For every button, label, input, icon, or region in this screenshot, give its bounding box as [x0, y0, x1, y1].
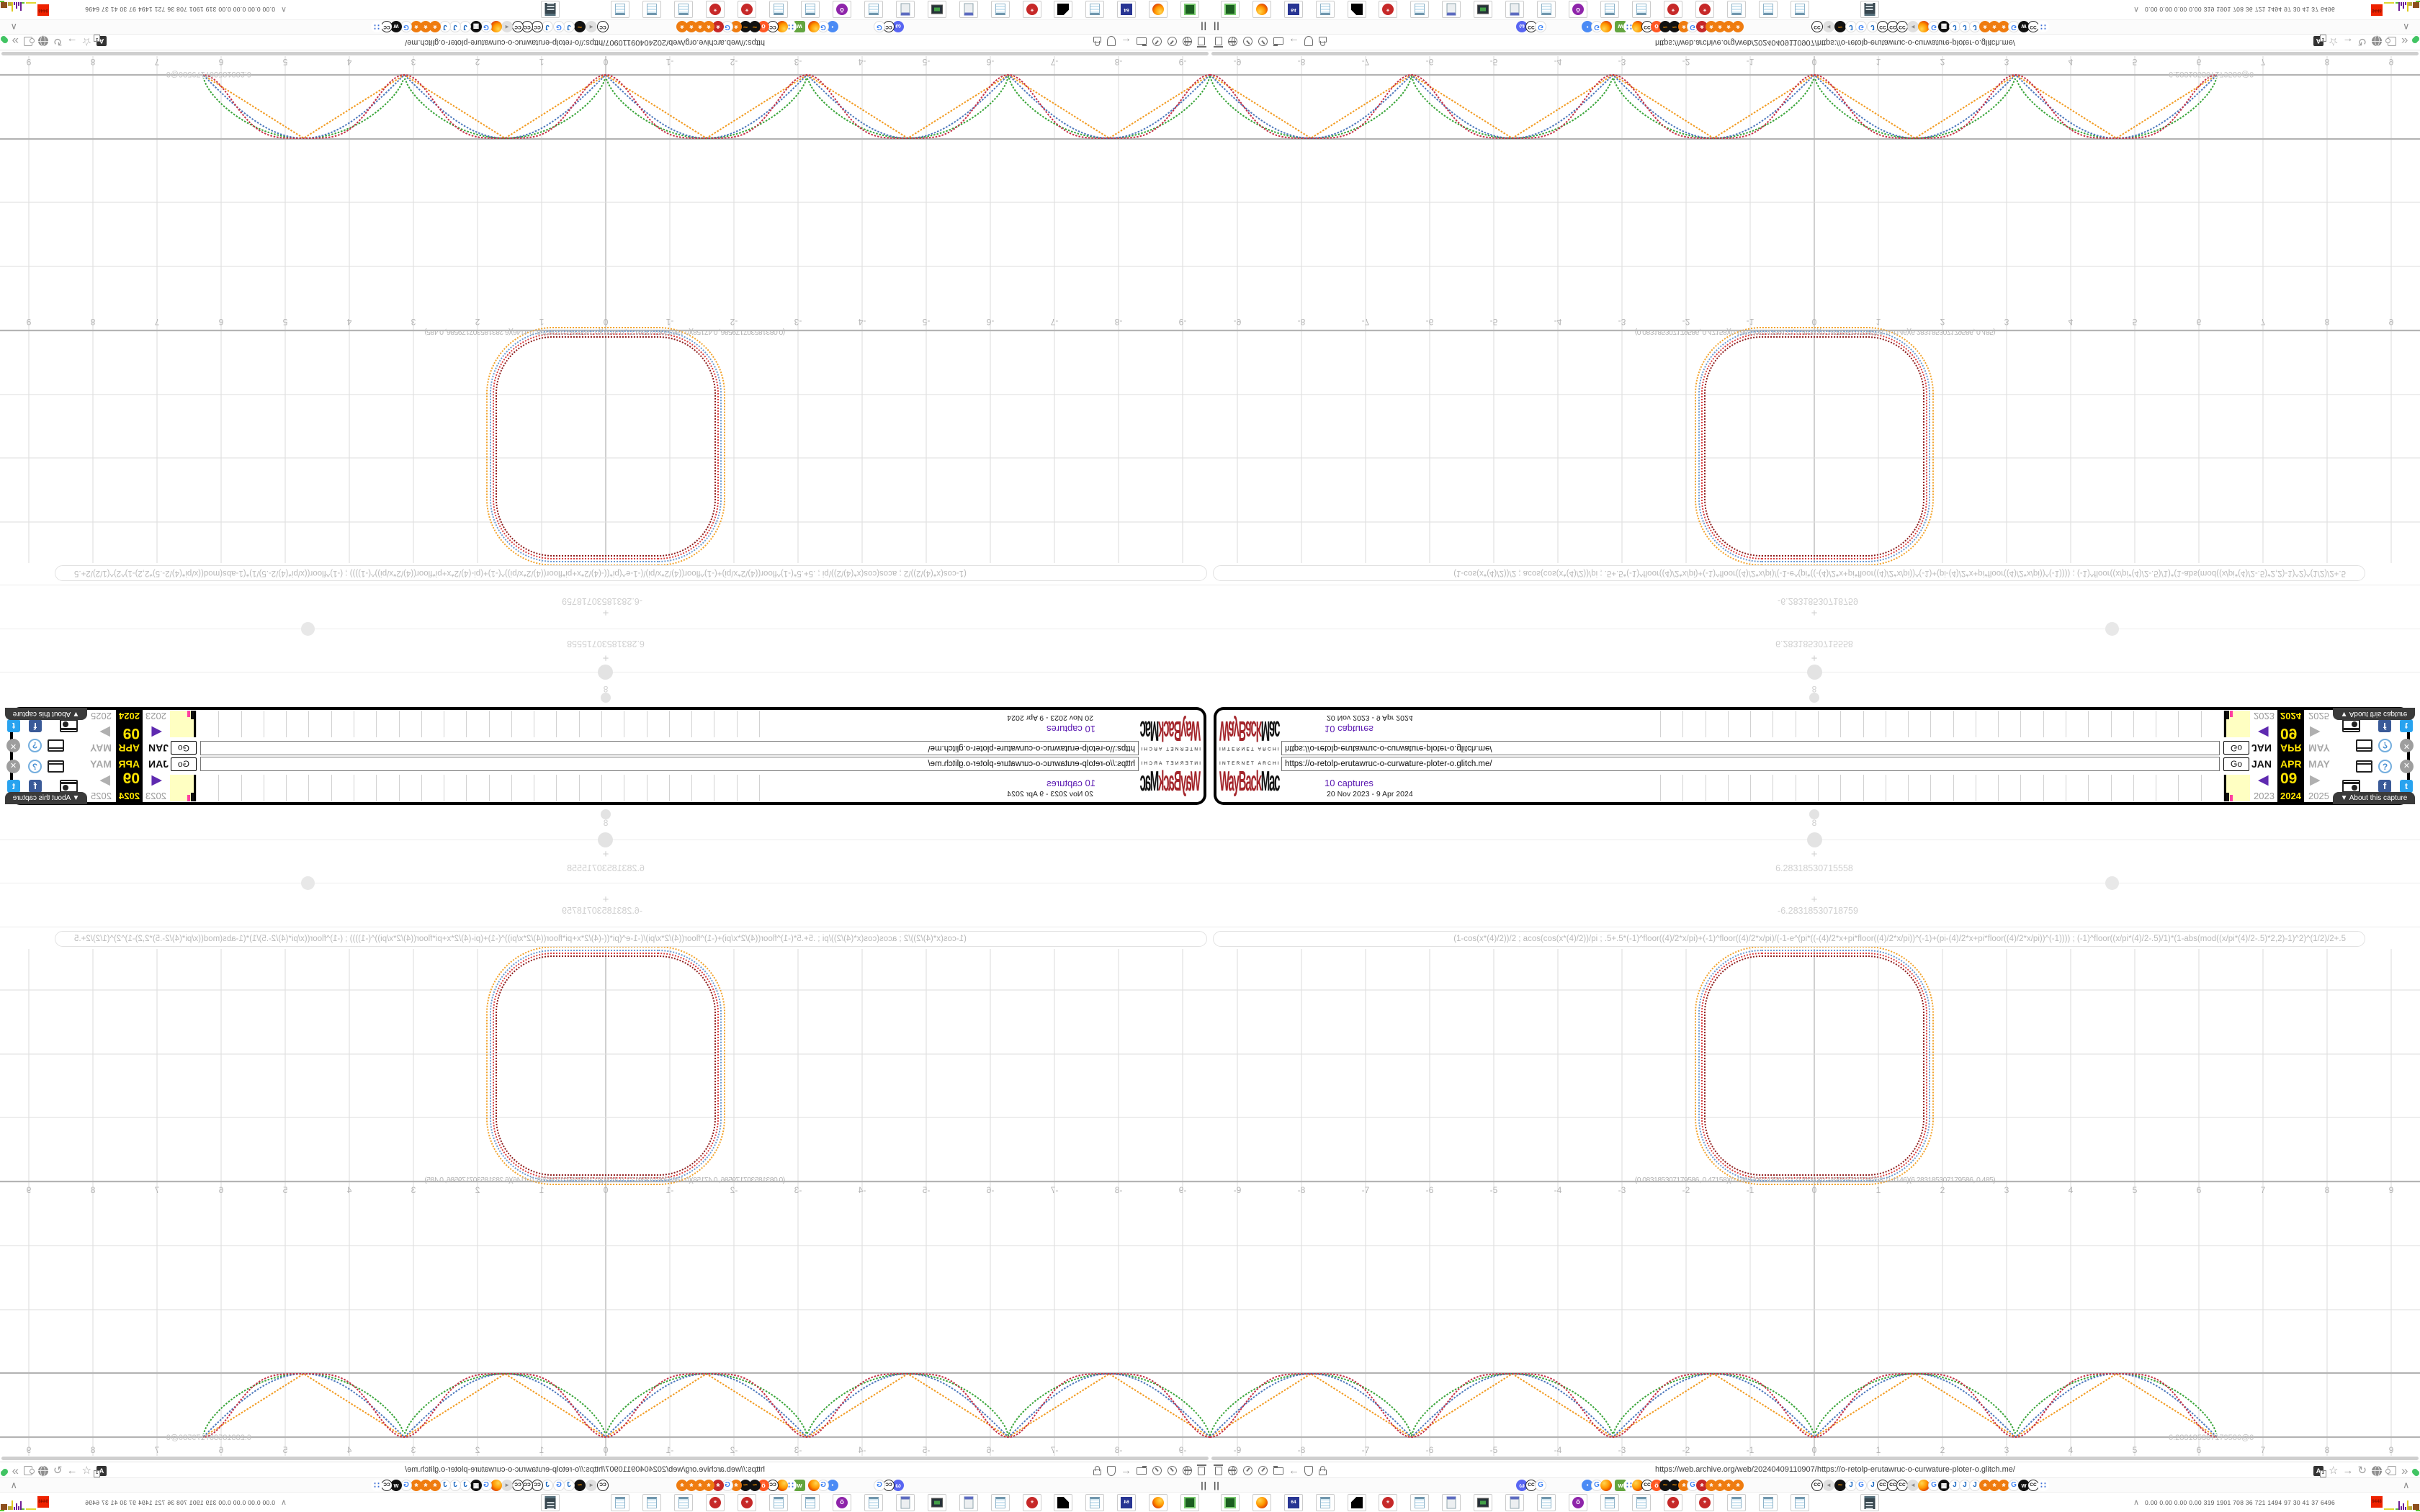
bookmark-notepad[interactable]: [611, 1, 629, 18]
lock-icon[interactable]: [1319, 1470, 1327, 1475]
month-tab-current[interactable]: APR: [2280, 742, 2302, 754]
year-current[interactable]: 2024: [2280, 791, 2301, 801]
globe-dark-icon[interactable]: [2372, 1466, 2382, 1476]
year-prev[interactable]: 2023: [2254, 711, 2275, 721]
tab-favicon-cc[interactable]: CC: [597, 21, 609, 32]
translate-icon[interactable]: A: [2313, 36, 2323, 46]
year-current[interactable]: 2024: [119, 791, 140, 801]
about-this-capture-button[interactable]: ▼ About this capture: [2333, 792, 2415, 804]
bookmark-monitor[interactable]: [928, 1, 946, 18]
tab-favicon-cc[interactable]: CC: [1811, 21, 1823, 32]
year-next[interactable]: 2025: [91, 791, 112, 801]
puzzle-icon[interactable]: [2388, 1466, 2396, 1475]
bookmark-notepad[interactable]: [801, 1494, 820, 1511]
tab-favicon-firefox[interactable]: [1600, 1480, 1612, 1491]
range-min-value[interactable]: -6.28318530718759: [1757, 906, 1879, 916]
range-max-value[interactable]: 6.28318530715558: [1757, 639, 1872, 649]
translate-icon[interactable]: A: [97, 36, 107, 46]
bookmark-gear-r[interactable]: *: [738, 1, 756, 18]
bookmark-notepad[interactable]: [1759, 1, 1778, 18]
bookmark-owl[interactable]: ö: [833, 1494, 851, 1511]
tab-favicon-google[interactable]: G: [553, 21, 565, 32]
reload-icon[interactable]: ↻: [2357, 35, 2367, 48]
tab-favicon-google[interactable]: G: [874, 1480, 885, 1491]
tab-favicon-google[interactable]: G: [874, 21, 885, 32]
tab-favicon-google[interactable]: G: [1535, 1480, 1546, 1491]
bookmark-notepad[interactable]: [769, 1494, 788, 1511]
bookmark-notepad[interactable]: [1632, 1494, 1651, 1511]
bookmark-firefox[interactable]: [1149, 1, 1168, 18]
tab-favicon-speaker[interactable]: ◄: [586, 1480, 597, 1491]
tab-favicon-java[interactable]: J: [563, 21, 575, 32]
slider-handle[interactable]: [1807, 832, 1822, 847]
trash-icon[interactable]: [1215, 1467, 1222, 1475]
back-arrow-icon[interactable]: ←: [1121, 1464, 1131, 1477]
twitter-share-icon[interactable]: t: [2400, 780, 2413, 793]
facebook-share-icon[interactable]: f: [29, 719, 42, 732]
wayback-url-input[interactable]: [200, 757, 1139, 771]
pause-icon[interactable]: ||: [1214, 22, 1220, 32]
drag-cross-icon[interactable]: +: [584, 652, 627, 664]
about-this-capture-button[interactable]: ▼ About this capture: [5, 708, 87, 720]
bookmark-monitor[interactable]: [1474, 1494, 1492, 1511]
bookmark-notepad[interactable]: [1085, 1, 1104, 18]
go-button[interactable]: Go: [2223, 757, 2249, 771]
captures-link[interactable]: 10 captures: [1047, 778, 1095, 788]
screenshot-icon[interactable]: [60, 719, 78, 732]
bookmark-notepad[interactable]: [674, 1494, 693, 1511]
puzzle-icon[interactable]: [2388, 37, 2396, 46]
window-expand-icon[interactable]: [48, 760, 64, 773]
tab-favicon-cc[interactable]: CC: [1811, 1480, 1823, 1491]
trash-icon[interactable]: [1198, 37, 1205, 45]
help-icon[interactable]: ?: [2378, 760, 2392, 773]
screenshot-icon[interactable]: [2342, 780, 2360, 793]
prev-capture-arrow[interactable]: ◀: [2258, 724, 2269, 739]
chevrons-icon[interactable]: »: [12, 35, 19, 48]
next-capture-arrow[interactable]: ▶: [2310, 773, 2321, 788]
tab-favicon-firefox[interactable]: [490, 21, 502, 32]
facebook-share-icon[interactable]: f: [29, 780, 42, 793]
help-icon[interactable]: ?: [2378, 739, 2392, 752]
bookmark-gear-r[interactable]: *: [1695, 1494, 1714, 1511]
slider-tick-icon[interactable]: +: [1793, 894, 1836, 906]
prev-capture-arrow[interactable]: ◀: [151, 724, 162, 739]
go-button[interactable]: Go: [171, 741, 197, 755]
bookmark-calc[interactable]: [1442, 1494, 1461, 1511]
bookmark-console[interactable]: [1221, 1494, 1240, 1511]
slider-tick-icon[interactable]: +: [584, 894, 627, 906]
bookmark-doc[interactable]: [1860, 1, 1879, 18]
captures-link[interactable]: 10 captures: [1325, 778, 1373, 788]
bookmark-cat[interactable]: [1348, 1, 1366, 18]
help-icon[interactable]: ?: [28, 760, 42, 773]
bookmark-floppy[interactable]: 64: [1284, 1494, 1303, 1511]
year-prev[interactable]: 2023: [145, 711, 166, 721]
bookmark-monitor[interactable]: [1474, 1, 1492, 18]
bookmark-cat[interactable]: [1054, 1, 1072, 18]
wayback-logo[interactable]: INTERNET ARCHIVE WayBackMachine: [1219, 710, 1280, 755]
tab-favicon-wave[interactable]: ~: [1834, 21, 1846, 32]
tab-favicon-speaker[interactable]: ◄: [1907, 1480, 1919, 1491]
window-expand-icon[interactable]: [2356, 739, 2372, 752]
shield-icon[interactable]: [1107, 1466, 1116, 1476]
month-tab-current[interactable]: APR: [118, 758, 140, 770]
month-tab-next[interactable]: MAY: [2308, 742, 2330, 754]
puzzle-icon[interactable]: [24, 1466, 32, 1475]
year-prev[interactable]: 2023: [145, 791, 166, 801]
bookmark-gear-r[interactable]: *: [706, 1, 725, 18]
captures-link[interactable]: 10 captures: [1325, 724, 1373, 734]
go-button[interactable]: Go: [171, 757, 197, 771]
captures-link[interactable]: 10 captures: [1047, 724, 1095, 734]
capture-sparkline[interactable]: [197, 775, 760, 801]
tab-favicon-wave[interactable]: ~: [1834, 1480, 1846, 1491]
tab-favicon-cc[interactable]: CC: [532, 1480, 543, 1491]
bookmark-notepad[interactable]: [864, 1494, 883, 1511]
folder-icon[interactable]: [1273, 1467, 1283, 1475]
gauge-icon[interactable]: [1243, 37, 1252, 46]
close-toolbar-icon[interactable]: ✕: [6, 760, 20, 773]
bookmark-floppy[interactable]: 64: [1117, 1, 1136, 18]
star-icon[interactable]: ☆: [82, 35, 91, 48]
tab-favicon-firefox[interactable]: [808, 1480, 820, 1491]
globe-icon[interactable]: [1228, 37, 1237, 46]
capture-day[interactable]: 09: [123, 770, 140, 788]
tab-favicon-java[interactable]: J: [460, 1480, 471, 1491]
year-next[interactable]: 2025: [2308, 711, 2329, 721]
shield-icon[interactable]: [1304, 1466, 1313, 1476]
month-tab-next[interactable]: MAY: [90, 742, 112, 754]
stepper-handle[interactable]: [601, 693, 611, 703]
chevron-up-icon[interactable]: ∧: [2133, 1498, 2139, 1507]
folder-icon[interactable]: [1137, 1467, 1147, 1475]
tab-favicon-java[interactable]: J: [439, 1480, 451, 1491]
tab-favicon-cc[interactable]: CC: [512, 21, 524, 32]
close-toolbar-icon[interactable]: ✕: [2400, 760, 2414, 773]
back-arrow-icon[interactable]: ←: [1121, 35, 1131, 48]
bookmark-console[interactable]: [1180, 1494, 1199, 1511]
tab-favicon-grid[interactable]: ▦: [1938, 21, 1950, 32]
bookmark-notepad[interactable]: [674, 1, 693, 18]
tab-favicon-cc[interactable]: CC: [1896, 1480, 1908, 1491]
slider-tick-icon[interactable]: +: [584, 606, 627, 618]
bookmark-gear-r[interactable]: *: [738, 1494, 756, 1511]
shield-icon[interactable]: [1304, 36, 1313, 46]
next-capture-arrow[interactable]: ▶: [99, 724, 110, 739]
screenshot-icon[interactable]: [60, 780, 78, 793]
tab-favicon-dots[interactable]: ∷: [371, 1480, 382, 1491]
trash-icon[interactable]: [1198, 1467, 1205, 1475]
shield-icon[interactable]: [1107, 36, 1116, 46]
help-icon[interactable]: ?: [28, 739, 42, 752]
tab-favicon-speaker[interactable]: ◄: [1823, 1480, 1834, 1491]
slider-tick-icon[interactable]: +: [1793, 606, 1836, 618]
bookmark-owl[interactable]: ö: [833, 1, 851, 18]
bookmark-notepad[interactable]: [991, 1, 1010, 18]
chevron-up-icon[interactable]: ∧: [10, 1480, 17, 1491]
tab-favicon-java[interactable]: J: [449, 1480, 461, 1491]
window-expand-icon[interactable]: [48, 739, 64, 752]
chevron-up-icon[interactable]: ∧: [281, 1498, 287, 1507]
tab-favicon-cc[interactable]: CC: [1896, 21, 1908, 32]
bookmark-calc[interactable]: [896, 1, 915, 18]
twitter-share-icon[interactable]: t: [7, 719, 20, 732]
bookmark-doc[interactable]: [541, 1494, 560, 1511]
reload-icon[interactable]: ↻: [53, 1464, 63, 1477]
tab-favicon-grid[interactable]: ▦: [470, 21, 482, 32]
formula-input[interactable]: (1-cos(x*(4)/2))/2 ; acos(cos(x*(4)/2))/…: [55, 931, 1207, 947]
bookmark-calc[interactable]: [1505, 1, 1524, 18]
pause-icon[interactable]: ||: [1200, 1480, 1206, 1490]
year-current[interactable]: 2024: [2280, 711, 2301, 721]
scrollbar-divider[interactable]: [1, 52, 1209, 55]
tab-favicon-speaker[interactable]: ◄: [501, 21, 513, 32]
reload-icon[interactable]: ↻: [2357, 1464, 2367, 1477]
tab-favicon-google[interactable]: G: [1855, 1480, 1867, 1491]
gauge-icon[interactable]: [1258, 37, 1268, 46]
next-capture-arrow[interactable]: ▶: [2310, 724, 2321, 739]
bookmark-notepad[interactable]: [1600, 1494, 1619, 1511]
month-tab-prev[interactable]: JAN: [148, 758, 169, 770]
scrollbar-divider[interactable]: [1211, 1457, 2419, 1460]
segments-value[interactable]: 8: [584, 818, 627, 828]
tab-favicon-google[interactable]: G: [400, 1480, 412, 1491]
tab-favicon-speaker[interactable]: ◄: [1823, 21, 1834, 32]
year-current[interactable]: 2024: [119, 711, 140, 721]
bookmark-notepad[interactable]: [642, 1, 661, 18]
month-tab-current[interactable]: APR: [118, 742, 140, 754]
globe-dark-icon[interactable]: [2372, 36, 2382, 46]
tab-favicon-cc[interactable]: CC: [532, 21, 543, 32]
wayback-logo[interactable]: INTERNET ARCHIVE WayBackMachine: [1140, 757, 1201, 802]
tab-favicon-speaker[interactable]: ◄: [1907, 21, 1919, 32]
back-arrow-icon[interactable]: ←: [1289, 35, 1299, 48]
bookmark-notepad[interactable]: [864, 1, 883, 18]
forward-arrow-icon[interactable]: →: [67, 1464, 78, 1477]
tab-favicon-wave[interactable]: ~: [574, 1480, 586, 1491]
tab-favicon-speaker[interactable]: ◄: [501, 1480, 513, 1491]
capture-day[interactable]: 09: [123, 724, 140, 742]
bookmark-notepad[interactable]: [1727, 1, 1746, 18]
address-bar-url[interactable]: https://web.archive.org/web/202404091109…: [1655, 38, 2015, 47]
tab-favicon-java[interactable]: J: [449, 21, 461, 32]
wayback-logo[interactable]: INTERNET ARCHIVE WayBackMachine: [1219, 757, 1280, 802]
forward-arrow-icon[interactable]: →: [2342, 35, 2353, 48]
bookmark-gear-r[interactable]: *: [1695, 1, 1714, 18]
capture-sparkline[interactable]: [1660, 775, 2223, 801]
folder-icon[interactable]: [1137, 37, 1147, 45]
tab-favicon-google[interactable]: G: [553, 1480, 565, 1491]
star-icon[interactable]: ☆: [82, 1464, 91, 1477]
tab-favicon-gear-o[interactable]: *: [1732, 21, 1744, 32]
bookmark-doc[interactable]: [1860, 1494, 1879, 1511]
pause-icon[interactable]: ||: [1214, 1480, 1220, 1490]
bookmark-gear-r[interactable]: *: [1023, 1, 1041, 18]
drag-cross-icon[interactable]: +: [584, 848, 627, 860]
bookmark-notepad[interactable]: [611, 1494, 629, 1511]
tab-favicon-gear-o[interactable]: *: [1732, 1480, 1744, 1491]
close-toolbar-icon[interactable]: ✕: [6, 739, 20, 752]
capture-sparkline[interactable]: [1660, 711, 2223, 737]
reload-icon[interactable]: ↻: [53, 35, 63, 48]
tab-favicon-google[interactable]: G: [1535, 21, 1546, 32]
about-this-capture-button[interactable]: ▼ About this capture: [5, 792, 87, 804]
tab-favicon-dots[interactable]: ∷: [371, 21, 382, 32]
range-max-value[interactable]: 6.28318530715558: [1757, 863, 1872, 873]
tab-favicon-google[interactable]: G: [480, 21, 492, 32]
twitter-share-icon[interactable]: t: [2400, 719, 2413, 732]
tab-favicon-gear-o[interactable]: *: [411, 21, 422, 32]
bookmark-floppy[interactable]: 64: [1117, 1494, 1136, 1511]
range-min-value[interactable]: -6.28318530718759: [541, 596, 663, 606]
tab-favicon-gear-o[interactable]: *: [676, 21, 688, 32]
formula-input[interactable]: (1-cos(x*(4)/2))/2 ; acos(cos(x*(4)/2))/…: [1213, 565, 2365, 581]
globe-icon[interactable]: [1183, 1466, 1192, 1475]
range-min-value[interactable]: -6.28318530718759: [541, 906, 663, 916]
chevrons-icon[interactable]: »: [12, 1464, 19, 1477]
bookmark-notepad[interactable]: [1600, 1, 1619, 18]
segments-value[interactable]: 8: [1793, 818, 1836, 828]
bookmark-gear-r[interactable]: *: [1379, 1494, 1397, 1511]
gauge-icon[interactable]: [1152, 37, 1162, 46]
close-toolbar-icon[interactable]: ✕: [2400, 739, 2414, 752]
tab-favicon-cc[interactable]: CC: [381, 1480, 393, 1491]
bookmark-calc[interactable]: [1442, 1, 1461, 18]
wayback-url-input[interactable]: [200, 741, 1139, 755]
bookmark-floppy[interactable]: 64: [1284, 1, 1303, 18]
tab-favicon-dots[interactable]: ∷: [2038, 1480, 2049, 1491]
slider-handle[interactable]: [598, 832, 613, 847]
chevrons-icon[interactable]: »: [2401, 1464, 2408, 1477]
back-arrow-icon[interactable]: ←: [1289, 1464, 1299, 1477]
star-icon[interactable]: ☆: [2329, 35, 2338, 48]
month-tab-prev[interactable]: JAN: [148, 742, 169, 754]
month-tab-next[interactable]: MAY: [2308, 758, 2330, 770]
bookmark-calc[interactable]: [896, 1494, 915, 1511]
globe-dark-icon[interactable]: [38, 1466, 48, 1476]
scrollbar-divider[interactable]: [1211, 52, 2419, 55]
forward-arrow-icon[interactable]: →: [2342, 1464, 2353, 1477]
gauge-icon[interactable]: [1258, 1466, 1268, 1475]
drag-cross-icon[interactable]: +: [1793, 652, 1836, 664]
gauge-icon[interactable]: [1168, 37, 1177, 46]
screenshot-icon[interactable]: [2342, 719, 2360, 732]
prev-capture-arrow[interactable]: ◀: [2258, 773, 2269, 788]
tab-favicon-google[interactable]: G: [1855, 21, 1867, 32]
globe-icon[interactable]: [1228, 1466, 1237, 1475]
prev-capture-arrow[interactable]: ◀: [151, 773, 162, 788]
chevron-up-icon[interactable]: ∧: [2133, 5, 2139, 14]
bookmark-monitor[interactable]: [928, 1494, 946, 1511]
bookmark-gear-r[interactable]: *: [1664, 1, 1682, 18]
twitter-share-icon[interactable]: t: [7, 780, 20, 793]
tab-favicon-cc[interactable]: CC: [597, 1480, 609, 1491]
bookmark-notepad[interactable]: [1085, 1494, 1104, 1511]
month-tab-next[interactable]: MAY: [90, 758, 112, 770]
tab-favicon-java[interactable]: J: [542, 21, 553, 32]
forward-arrow-icon[interactable]: →: [67, 35, 78, 48]
tab-favicon-gear-o[interactable]: *: [676, 1480, 688, 1491]
tab-favicon-google[interactable]: G: [480, 1480, 492, 1491]
go-button[interactable]: Go: [2223, 741, 2249, 755]
bookmark-calc[interactable]: [959, 1494, 978, 1511]
tab-favicon-java[interactable]: J: [542, 1480, 553, 1491]
gauge-icon[interactable]: [1243, 1466, 1252, 1475]
tab-favicon-java[interactable]: J: [460, 21, 471, 32]
address-bar-url[interactable]: https://web.archive.org/web/202404091109…: [405, 38, 765, 47]
tab-favicon-speaker[interactable]: ◄: [586, 21, 597, 32]
year-next[interactable]: 2025: [91, 711, 112, 721]
chevron-up-icon[interactable]: ∧: [281, 5, 287, 14]
bookmark-notepad[interactable]: [1410, 1494, 1429, 1511]
window-expand-icon[interactable]: [2356, 760, 2372, 773]
wayback-url-input[interactable]: [1281, 741, 2220, 755]
tab-favicon-grid[interactable]: ▦: [1938, 1480, 1950, 1491]
bookmark-owl[interactable]: ö: [1569, 1494, 1587, 1511]
bookmark-notepad[interactable]: [1410, 1, 1429, 18]
bookmark-notepad[interactable]: [1316, 1494, 1335, 1511]
scrollbar-divider[interactable]: [1, 1457, 1209, 1460]
next-capture-arrow[interactable]: ▶: [99, 773, 110, 788]
slider-handle[interactable]: [598, 665, 613, 680]
chevron-up-icon[interactable]: ∧: [10, 21, 17, 32]
bookmark-cat[interactable]: [1348, 1494, 1366, 1511]
trash-icon[interactable]: [1215, 37, 1222, 45]
drag-cross-icon[interactable]: +: [1793, 848, 1836, 860]
bookmark-console[interactable]: [1180, 1, 1199, 18]
range-min-value[interactable]: -6.28318530718759: [1757, 596, 1879, 606]
tab-favicon-dots[interactable]: ∷: [2038, 21, 2049, 32]
about-this-capture-button[interactable]: ▼ About this capture: [2333, 708, 2415, 720]
bookmark-notepad[interactable]: [1791, 1, 1809, 18]
tab-favicon-cc[interactable]: CC: [512, 1480, 524, 1491]
puzzle-icon[interactable]: [24, 37, 32, 46]
segments-value[interactable]: 8: [584, 684, 627, 694]
star-icon[interactable]: ☆: [2329, 1464, 2338, 1477]
bookmark-notepad[interactable]: [642, 1494, 661, 1511]
bookmark-notepad[interactable]: [1632, 1, 1651, 18]
chevrons-icon[interactable]: »: [2401, 35, 2408, 48]
tab-favicon-google[interactable]: G: [400, 21, 412, 32]
facebook-share-icon[interactable]: f: [2378, 719, 2391, 732]
folder-icon[interactable]: [1273, 37, 1283, 45]
bookmark-notepad[interactable]: [1791, 1494, 1809, 1511]
gauge-icon[interactable]: [1168, 1466, 1177, 1475]
bookmark-doc[interactable]: [541, 1, 560, 18]
bookmark-firefox[interactable]: [1252, 1, 1271, 18]
address-bar-url[interactable]: https://web.archive.org/web/202404091109…: [405, 1465, 765, 1474]
translate-icon[interactable]: A: [97, 1466, 107, 1476]
address-bar-url[interactable]: https://web.archive.org/web/202404091109…: [1655, 1465, 2015, 1474]
bookmark-firefox[interactable]: [1252, 1494, 1271, 1511]
wayback-url-input[interactable]: [1281, 757, 2220, 771]
gauge-icon[interactable]: [1152, 1466, 1162, 1475]
lock-icon[interactable]: [1093, 37, 1101, 42]
bookmark-notepad[interactable]: [1537, 1, 1556, 18]
bookmark-cat[interactable]: [1054, 1494, 1072, 1511]
slider-handle[interactable]: [1807, 665, 1822, 680]
lock-icon[interactable]: [1093, 1470, 1101, 1475]
month-tab-prev[interactable]: JAN: [2251, 742, 2272, 754]
bookmark-notepad[interactable]: [1316, 1, 1335, 18]
bookmark-gear-r[interactable]: *: [1664, 1494, 1682, 1511]
capture-day[interactable]: 09: [2280, 724, 2297, 742]
bookmark-notepad[interactable]: [769, 1, 788, 18]
bookmark-owl[interactable]: ö: [1569, 1, 1587, 18]
chevron-up-icon[interactable]: ∧: [2403, 1480, 2410, 1491]
bookmark-gear-r[interactable]: *: [1023, 1494, 1041, 1511]
